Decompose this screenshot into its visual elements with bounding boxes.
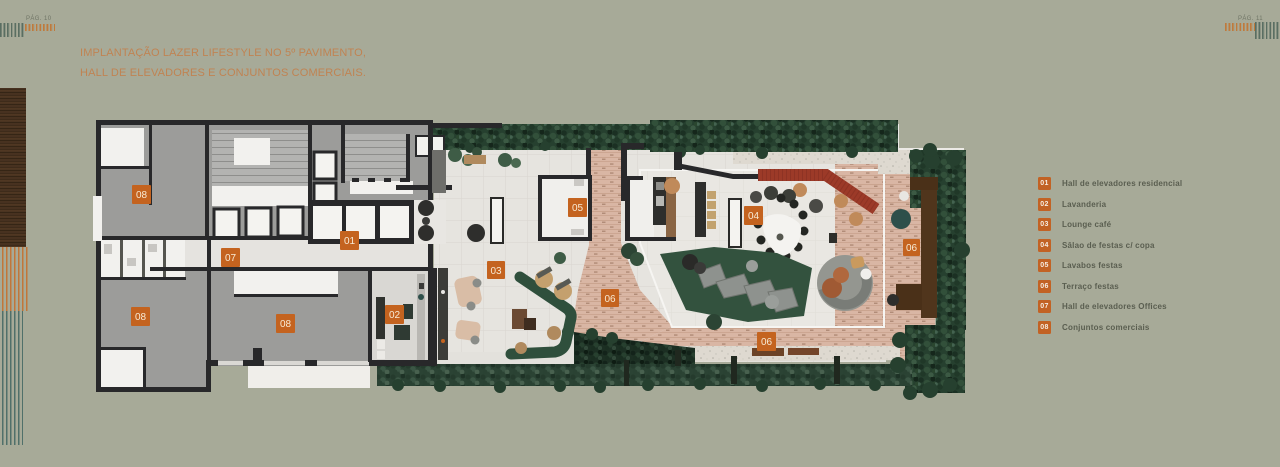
svg-text:06: 06 bbox=[761, 337, 773, 348]
svg-text:01: 01 bbox=[344, 236, 356, 247]
svg-text:08: 08 bbox=[280, 319, 292, 330]
svg-text:03: 03 bbox=[490, 266, 502, 277]
svg-text:04: 04 bbox=[748, 211, 760, 222]
svg-text:06: 06 bbox=[604, 294, 616, 305]
svg-text:02: 02 bbox=[389, 310, 401, 321]
svg-text:08: 08 bbox=[135, 312, 147, 323]
svg-text:06: 06 bbox=[906, 243, 918, 254]
svg-text:05: 05 bbox=[572, 203, 584, 214]
svg-text:08: 08 bbox=[136, 190, 148, 201]
svg-text:07: 07 bbox=[225, 253, 237, 264]
